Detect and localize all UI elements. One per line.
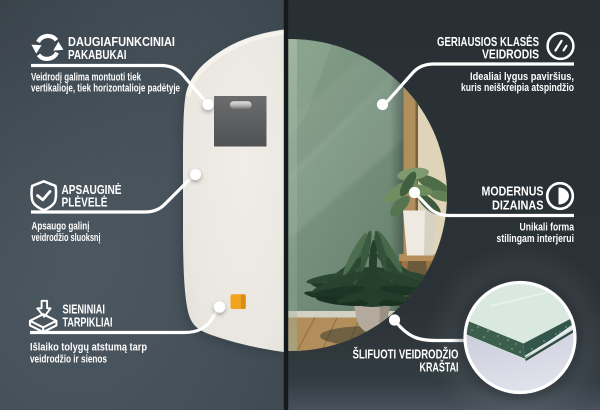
svg-text:PAKABUKAI: PAKABUKAI [68,47,127,62]
svg-text:VEIDRODIS: VEIDRODIS [482,47,539,62]
svg-text:DIZAINAS: DIZAINAS [492,198,544,213]
svg-text:MODERNUS: MODERNUS [482,183,544,198]
svg-text:KRAŠTAI: KRAŠTAI [420,360,459,375]
svg-text:PLĖVELĖ: PLĖVELĖ [62,194,108,209]
svg-text:TARPIKLIAI: TARPIKLIAI [63,315,113,330]
svg-text:Išlaiko tolygų atstumą tarp: Išlaiko tolygų atstumą tarp [30,342,147,354]
svg-text:kuris neiškreipia atspindžio: kuris neiškreipia atspindžio [461,82,574,94]
svg-text:Apsaugo galinį: Apsaugo galinį [32,221,90,233]
svg-text:veidrodžio sluoksnį: veidrodžio sluoksnį [32,232,101,244]
svg-text:stilingam interjerui: stilingam interjerui [497,233,575,245]
svg-text:Unikali forma: Unikali forma [520,222,575,234]
svg-text:vertikalioje, tiek horizontali: vertikalioje, tiek horizontalioje padėty… [31,82,180,94]
svg-text:veidrodžio ir sienos: veidrodžio ir sienos [30,354,107,366]
